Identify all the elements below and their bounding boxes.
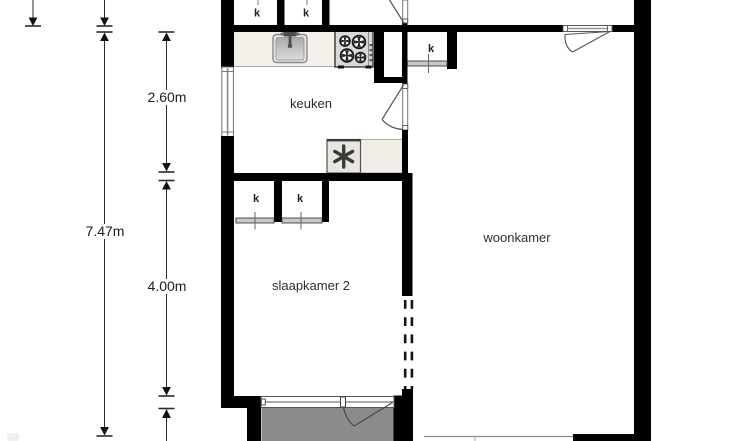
svg-text:k: k xyxy=(297,193,304,205)
svg-text:keuken: keuken xyxy=(290,96,332,111)
svg-text:k: k xyxy=(428,43,435,55)
svg-text:4.00m: 4.00m xyxy=(148,278,187,294)
svg-text:k: k xyxy=(303,8,310,20)
svg-text:2.60m: 2.60m xyxy=(148,89,187,105)
svg-text:7.47m: 7.47m xyxy=(86,223,125,239)
svg-text:k: k xyxy=(253,193,260,205)
svg-text:woonkamer: woonkamer xyxy=(482,230,551,245)
svg-text:k: k xyxy=(254,8,261,20)
svg-text:slaapkamer 2: slaapkamer 2 xyxy=(272,278,350,293)
